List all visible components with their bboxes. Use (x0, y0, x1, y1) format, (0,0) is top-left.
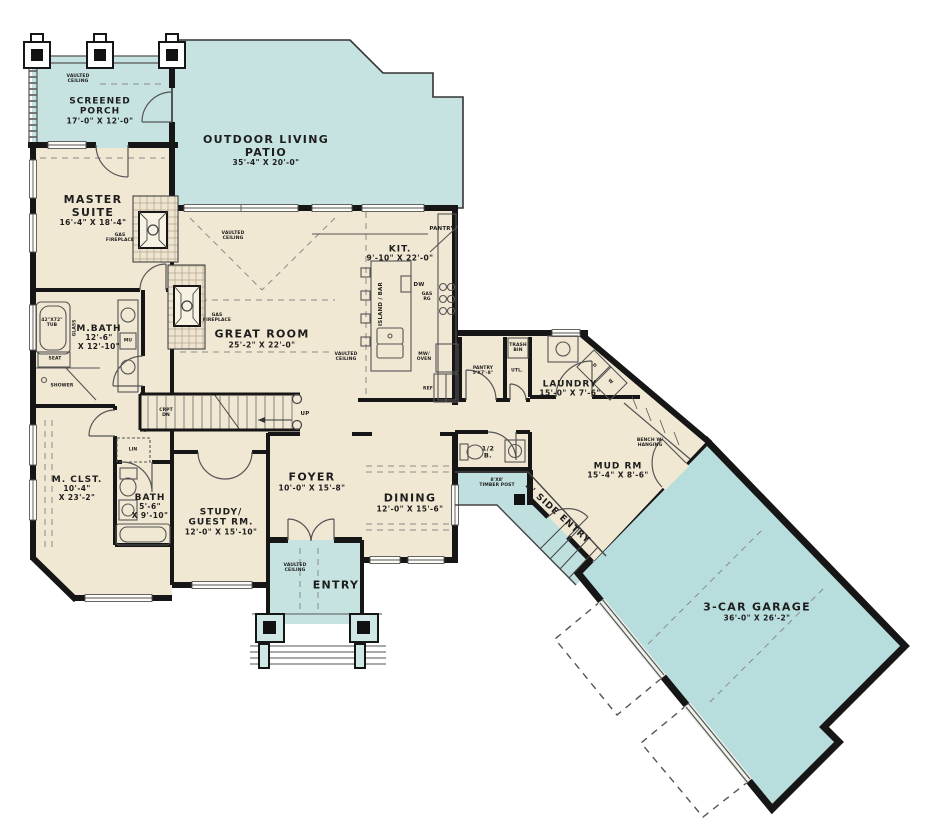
label-linen: LIN (129, 447, 138, 452)
label-shower: SHOWER (51, 383, 74, 388)
label-island-bar: ISLAND / BAR (378, 282, 384, 326)
label-screened-porch: SCREENED PORCH 17'-0" X 12'-0" (67, 96, 134, 125)
label-master-bath: M.BATH 12'-6" X 12'-10" (76, 324, 121, 352)
label-seat: SEAT (49, 356, 62, 361)
label-gas-range: GAS RG (422, 292, 433, 302)
label-makeup: MU (124, 338, 132, 343)
label-timber-post: 8'X8' TIMBER POST (479, 478, 514, 488)
label-microwave-oven: MW/ OVEN (417, 352, 431, 362)
label-stairs-up: UP (301, 411, 310, 417)
label-mud-room: MUD RM 15'-4" X 8'-6" (587, 462, 648, 481)
timber-post (514, 494, 525, 505)
label-great-room: GREAT ROOM 25'-2" X 22'-0" (214, 328, 309, 349)
label-foyer: FOYER 10'-0" X 15'-8" (279, 471, 346, 492)
great-room-fireplace (168, 265, 205, 349)
floor-plan: SCREENED PORCH 17'-0" X 12'-0" VAULTED C… (0, 0, 950, 819)
label-dishwasher: DW (413, 282, 424, 288)
label-great-room-vaulted-2: VAULTED CEILING (335, 352, 358, 362)
floor-plan-drawing (0, 0, 950, 819)
label-porch-vaulted-ceiling: VAULTED CEILING (67, 74, 90, 84)
label-utility: UTL. (511, 368, 523, 373)
label-half-bath: 1/2 B. (482, 446, 495, 461)
label-refrigerator: REF (423, 386, 433, 391)
label-stairs-down: CRPT DN (159, 408, 173, 418)
label-garage: 3-CAR GARAGE 36'-0" X 26'-2" (703, 601, 811, 622)
label-pantry-corner: PANTRY (429, 226, 454, 232)
label-study: STUDY/ GUEST RM. 12'-0" X 15'-10" (185, 507, 258, 536)
patio-floor (172, 40, 463, 208)
label-gas-fireplace-master: GAS FIREPLACE (106, 233, 134, 243)
label-entry-vaulted: VAULTED CEILING (284, 563, 307, 573)
label-patio: OUTDOOR LIVING PATIO 35'-4" X 20'-0" (203, 134, 329, 168)
label-tub: 42"X72" TUB (41, 318, 62, 328)
label-bath: BATH 5'-6" X 9'-10" (132, 493, 169, 521)
label-great-room-vaulted-1: VAULTED CEILING (222, 231, 245, 241)
master-fireplace (133, 196, 178, 262)
label-glass: GLASS (72, 320, 77, 337)
label-dining: DINING 12'-0" X 15'-6" (377, 492, 444, 513)
label-laundry: LAUNDRY 15'-0" X 7'-6" (539, 380, 600, 399)
label-master-closet: M. CLST. 10'-4" X 23'-2" (52, 475, 103, 503)
label-kitchen: KIT. 9'-10" X 22'-0" (367, 245, 434, 264)
label-pantry-closet: PANTRY 5'X7'-8" (473, 366, 494, 376)
label-bench: BENCH W/ HANGING (637, 438, 663, 448)
porch-piers (24, 34, 185, 68)
label-master-suite: MASTER SUITE 16'-4" X 18'-4" (60, 194, 127, 228)
label-trash-bin: TRASH BIN (509, 343, 527, 353)
label-gas-fireplace-great: GAS FIREPLACE (203, 313, 231, 323)
label-entry: ENTRY (313, 580, 360, 593)
